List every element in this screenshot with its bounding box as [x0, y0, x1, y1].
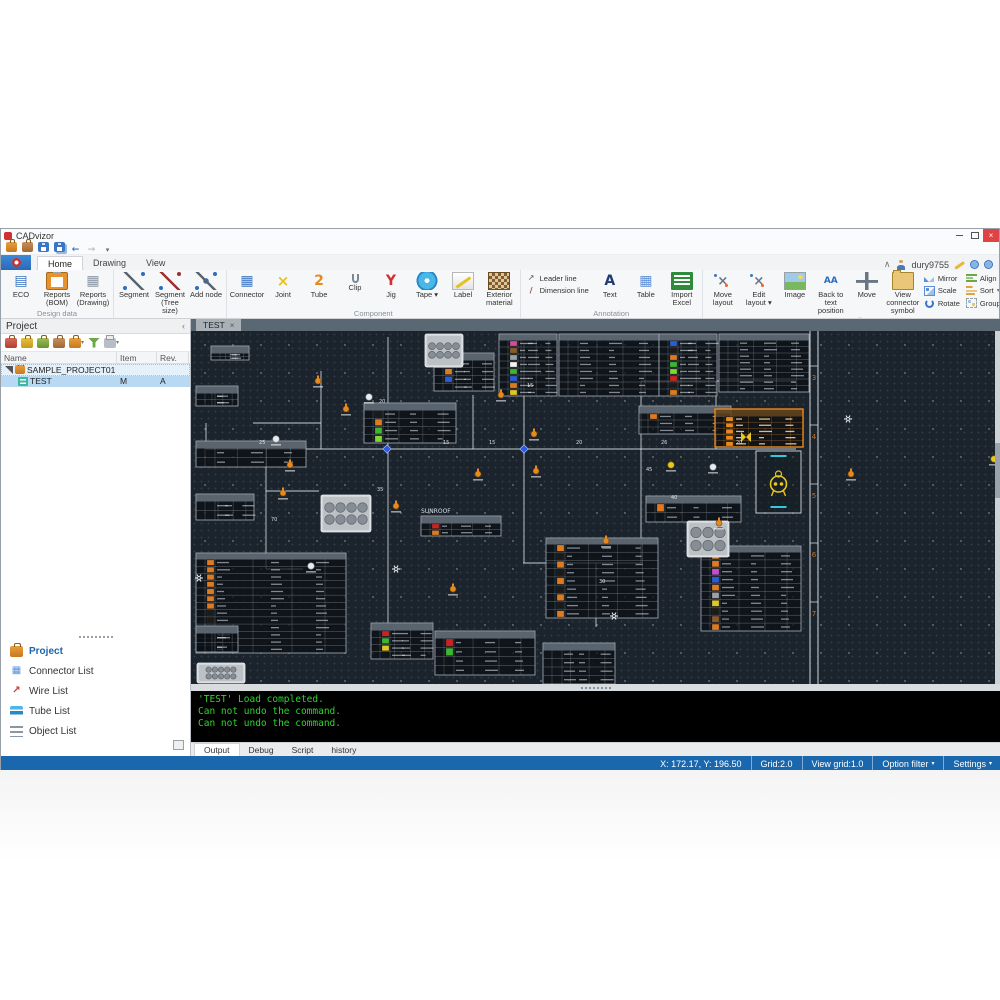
- panel-resize-handle[interactable]: [173, 740, 184, 750]
- svg-text:20: 20: [379, 399, 385, 405]
- add-node-icon: [195, 272, 217, 290]
- svg-text:7: 7: [812, 610, 816, 618]
- jig-icon: Y: [380, 272, 402, 290]
- svg-text:5: 5: [812, 492, 816, 500]
- svg-text:SUNROOF: SUNROOF: [421, 508, 451, 515]
- import-excel-button[interactable]: Import Excel: [664, 271, 700, 308]
- nav-connector-icon: ▦: [10, 666, 23, 677]
- svg-text:4: 4: [812, 433, 817, 441]
- save-icon: [38, 242, 49, 252]
- sync-project-button[interactable]: [37, 338, 49, 348]
- column-header-name[interactable]: Name: [1, 352, 117, 363]
- new-project-button[interactable]: [5, 338, 17, 348]
- column-header-rev[interactable]: Rev.: [157, 352, 189, 363]
- label-button[interactable]: Label: [445, 271, 481, 300]
- panel-splitter[interactable]: [1, 634, 190, 638]
- ribbon-group-edit: Move layoutEdit layout ▾ImageAABack to t…: [703, 270, 999, 318]
- project-panel-title: Project: [6, 321, 37, 332]
- svg-text:20: 20: [736, 440, 742, 446]
- account-area: ∧dury9755: [884, 259, 999, 270]
- status-grid-2-0: Grid:2.0: [751, 756, 802, 771]
- project-grid-header: NameItemRev.: [1, 352, 190, 364]
- eco-icon: ▤: [10, 272, 32, 290]
- leader-line-icon: ↗: [526, 273, 537, 283]
- ribbon-group-design-data: ▤ECOReports (BOM)▦Reports (Drawing)Desig…: [1, 270, 114, 318]
- group-label: Annotation: [523, 309, 700, 318]
- console-line: 'TEST' Load completed.: [198, 694, 994, 706]
- panel-collapse-icon[interactable]: ‹: [182, 321, 185, 331]
- rotate-button[interactable]: Rotate: [921, 297, 963, 310]
- language-icon[interactable]: [984, 260, 993, 269]
- joint-button[interactable]: ×Joint: [265, 271, 301, 300]
- document-tab-test[interactable]: TEST×: [196, 319, 241, 331]
- import-icon: [22, 242, 33, 252]
- mirror-button[interactable]: Mirror: [921, 272, 963, 285]
- status-view-grid-1-0: View grid:1.0: [802, 756, 873, 771]
- exterior-icon: [488, 272, 510, 290]
- console-tab-output[interactable]: Output: [194, 743, 240, 756]
- drawing-canvas[interactable]: 25151520262020351545403070SUNROOF34567: [191, 331, 995, 684]
- canvas-vertical-scrollbar[interactable]: [995, 331, 1000, 684]
- group-icon: [966, 298, 977, 308]
- svg-text:15: 15: [489, 440, 495, 446]
- dimension-line-button[interactable]: /Dimension line: [523, 285, 592, 298]
- console-tab-bar: OutputDebugScripthistory: [191, 742, 1000, 756]
- console-splitter[interactable]: [191, 684, 1000, 691]
- align-icon: [966, 273, 977, 283]
- svg-text:70: 70: [271, 517, 277, 523]
- jig-button[interactable]: YJig: [373, 271, 409, 300]
- move-layout-button[interactable]: Move layout: [705, 271, 741, 308]
- redo-icon: →: [86, 246, 97, 256]
- sort-button[interactable]: Sort▾: [963, 285, 999, 298]
- brief-brown-icon: [53, 338, 65, 348]
- expander-icon[interactable]: [5, 366, 13, 374]
- move-layout-icon: [712, 272, 734, 290]
- segment-tree-icon: [159, 272, 181, 290]
- panel-nav: Project▦Connector List↗Wire ListTube Lis…: [1, 641, 190, 741]
- quick-access-toolbar: ←→▾: [1, 242, 999, 255]
- restore-button[interactable]: [967, 229, 983, 242]
- printer-icon: [104, 338, 116, 348]
- app-menu-button[interactable]: [1, 255, 31, 270]
- sort-icon: [966, 286, 977, 296]
- nav-project-icon: [10, 646, 23, 657]
- move-icon: [856, 272, 878, 290]
- undo-icon: ←: [70, 246, 81, 256]
- brief-green-icon: [37, 338, 49, 348]
- svg-text:26: 26: [661, 440, 667, 446]
- help-icon[interactable]: [970, 260, 979, 269]
- view-connector-icon: [892, 272, 914, 290]
- ribbon-group-component: ▦Connector×Joint2TubeClipYJigTape ▾Label…: [227, 270, 521, 318]
- back-to-text-position-button[interactable]: AABack to text position: [813, 271, 849, 316]
- svg-text:15: 15: [443, 440, 449, 446]
- clip-button[interactable]: Clip: [337, 271, 373, 293]
- brief-orange-icon: [69, 338, 81, 348]
- view-connector-symbol-button[interactable]: View connector symbol: [885, 271, 921, 316]
- connector-icon: ▦: [236, 272, 258, 290]
- clip-icon: [352, 274, 359, 283]
- import-project-button[interactable]: [53, 338, 65, 348]
- tree-row-sample_project01[interactable]: SAMPLE_PROJECT01: [1, 364, 190, 376]
- export-project-button[interactable]: ▾: [69, 338, 84, 348]
- open-icon: [6, 242, 17, 252]
- segment-button[interactable]: Segment: [116, 271, 152, 300]
- text-icon: A: [599, 272, 621, 290]
- console-line: Can not undo the command.: [198, 718, 994, 730]
- sidebar-item-wire-list[interactable]: ↗Wire List: [1, 681, 190, 701]
- image-icon: [784, 272, 806, 290]
- project-toolbar: ▾▾: [1, 334, 190, 352]
- svg-text:30: 30: [599, 579, 605, 585]
- project-tree: SAMPLE_PROJECT01TESTMA: [1, 364, 190, 387]
- edit-layout-button[interactable]: Edit layout ▾: [741, 271, 777, 308]
- reports-drawing-button[interactable]: ▦Reports (Drawing): [75, 271, 111, 308]
- minimize-button[interactable]: [951, 229, 967, 242]
- eco-button[interactable]: ▤ECO: [3, 271, 39, 300]
- sidebar-item-object-list[interactable]: Object List: [1, 721, 190, 741]
- add-node-button[interactable]: Add node: [188, 271, 224, 300]
- project-panel-header: Project ‹: [1, 319, 190, 334]
- group-button[interactable]: Group▾: [963, 297, 999, 310]
- move-button[interactable]: Move: [849, 271, 885, 300]
- align-button[interactable]: Align▾: [963, 272, 999, 285]
- filter-icon: [88, 338, 100, 348]
- image-button[interactable]: Image: [777, 271, 813, 300]
- output-console: 'TEST' Load completed.Can not undo the c…: [191, 691, 1000, 742]
- reports-bom-button[interactable]: Reports (BOM): [39, 271, 75, 308]
- open-project-button[interactable]: [21, 338, 33, 348]
- reports-drawing-icon: ▦: [82, 272, 104, 290]
- project-panel: Project ‹ ▾▾ NameItemRev. SAMPLE_PROJECT…: [1, 319, 191, 756]
- column-header-item[interactable]: Item: [117, 352, 157, 363]
- svg-text:35: 35: [377, 487, 383, 493]
- nav-tube-icon: [10, 706, 23, 717]
- ribbon-group-layout: SegmentSegment (Tree size)Add nodeLayout: [114, 270, 227, 318]
- status-bar: X: 172.17, Y: 196.50Grid:2.0View grid:1.…: [1, 756, 1000, 771]
- group-label: Component: [229, 309, 518, 318]
- user-name[interactable]: dury9755: [911, 260, 949, 270]
- table-icon: ▦: [635, 272, 657, 290]
- status-settings[interactable]: Settings▾: [943, 756, 1000, 771]
- tube-icon: 2: [308, 272, 330, 290]
- nav-wire-icon: ↗: [10, 686, 23, 697]
- console-tab-history[interactable]: history: [322, 743, 365, 756]
- svg-text:3: 3: [812, 374, 816, 382]
- console-line: Can not undo the command.: [198, 706, 994, 718]
- edit-layout-icon: [748, 272, 770, 290]
- tab-view[interactable]: View: [136, 256, 175, 270]
- segment-tree-size-button[interactable]: Segment (Tree size): [152, 271, 188, 316]
- doc-test-icon: [18, 377, 28, 386]
- desktop-background: [0, 770, 1000, 1000]
- scrollbar-thumb[interactable]: [995, 443, 1000, 498]
- svg-text:25: 25: [259, 440, 265, 446]
- brief-orange-icon: [15, 365, 25, 374]
- brief-red-icon: [5, 338, 17, 348]
- check-project-button[interactable]: [88, 338, 100, 348]
- console-tab-script[interactable]: Script: [283, 743, 323, 756]
- user-icon: [895, 260, 906, 270]
- edit-profile-icon[interactable]: [954, 260, 965, 270]
- table-button[interactable]: ▦Table: [628, 271, 664, 300]
- back-text-icon: AA: [820, 272, 842, 290]
- leader-line-button[interactable]: ↗Leader line: [523, 272, 592, 285]
- mirror-icon: [924, 273, 935, 283]
- import-excel-icon: [671, 272, 693, 290]
- label-icon: [452, 272, 474, 290]
- app-window: CADvizor × ←→▾ HomeDrawingView ∧dury9755…: [0, 228, 1000, 770]
- svg-text:15: 15: [527, 383, 533, 389]
- dimension-line-icon: /: [526, 286, 537, 296]
- tree-row-test[interactable]: TESTMA: [1, 376, 190, 388]
- text-button[interactable]: AText: [592, 271, 628, 300]
- tab-home[interactable]: Home: [37, 256, 83, 270]
- title-bar: CADvizor ×: [1, 229, 999, 242]
- save-all-icon: [54, 242, 65, 252]
- close-button[interactable]: ×: [983, 229, 999, 242]
- tube-button[interactable]: 2Tube: [301, 271, 337, 300]
- ribbon-group-annotation: ↗Leader line/Dimension lineAText▦TableIm…: [521, 270, 703, 318]
- close-tab-icon[interactable]: ×: [230, 321, 235, 330]
- svg-text:40: 40: [671, 495, 677, 501]
- status-option-filter[interactable]: Option filter▾: [872, 756, 943, 771]
- reports-bom-icon: [46, 272, 68, 290]
- sidebar-item-tube-list[interactable]: Tube List: [1, 701, 190, 721]
- ribbon: ▤ECOReports (BOM)▦Reports (Drawing)Desig…: [1, 270, 999, 319]
- tape-icon: [416, 272, 438, 290]
- app-logo-icon: [12, 258, 21, 267]
- harness-drawing[interactable]: 25151520262020351545403070SUNROOF34567: [191, 331, 995, 684]
- joint-icon: ×: [272, 272, 294, 290]
- svg-text:6: 6: [812, 551, 817, 559]
- exterior-material-button[interactable]: Exterior material: [481, 271, 518, 308]
- tab-drawing[interactable]: Drawing: [83, 256, 136, 270]
- status-x-172-17-y-196-50: X: 172.17, Y: 196.50: [651, 756, 750, 771]
- scale-button[interactable]: Scale: [921, 285, 963, 298]
- connector-button[interactable]: ▦Connector: [229, 271, 265, 300]
- console-tab-debug[interactable]: Debug: [240, 743, 283, 756]
- sidebar-item-connector-list[interactable]: ▦Connector List: [1, 661, 190, 681]
- sidebar-item-project[interactable]: Project: [1, 641, 190, 661]
- collapse-ribbon-icon[interactable]: ∧: [884, 259, 891, 270]
- customize-icon: ▾: [102, 246, 113, 256]
- document-tab-bar: TEST×: [191, 319, 1000, 331]
- scale-icon: [924, 286, 935, 296]
- svg-text:20: 20: [576, 440, 582, 446]
- segment-icon: [123, 272, 145, 290]
- brief-yellow-icon: [21, 338, 33, 348]
- svg-text:45: 45: [646, 467, 652, 473]
- rotate-icon: [925, 299, 934, 308]
- tape-button[interactable]: Tape ▾: [409, 271, 445, 300]
- ribbon-tab-row: HomeDrawingView ∧dury9755: [1, 255, 999, 270]
- group-label: Design data: [3, 309, 111, 318]
- print-project-button[interactable]: ▾: [104, 338, 119, 348]
- nav-object-icon: [10, 726, 23, 737]
